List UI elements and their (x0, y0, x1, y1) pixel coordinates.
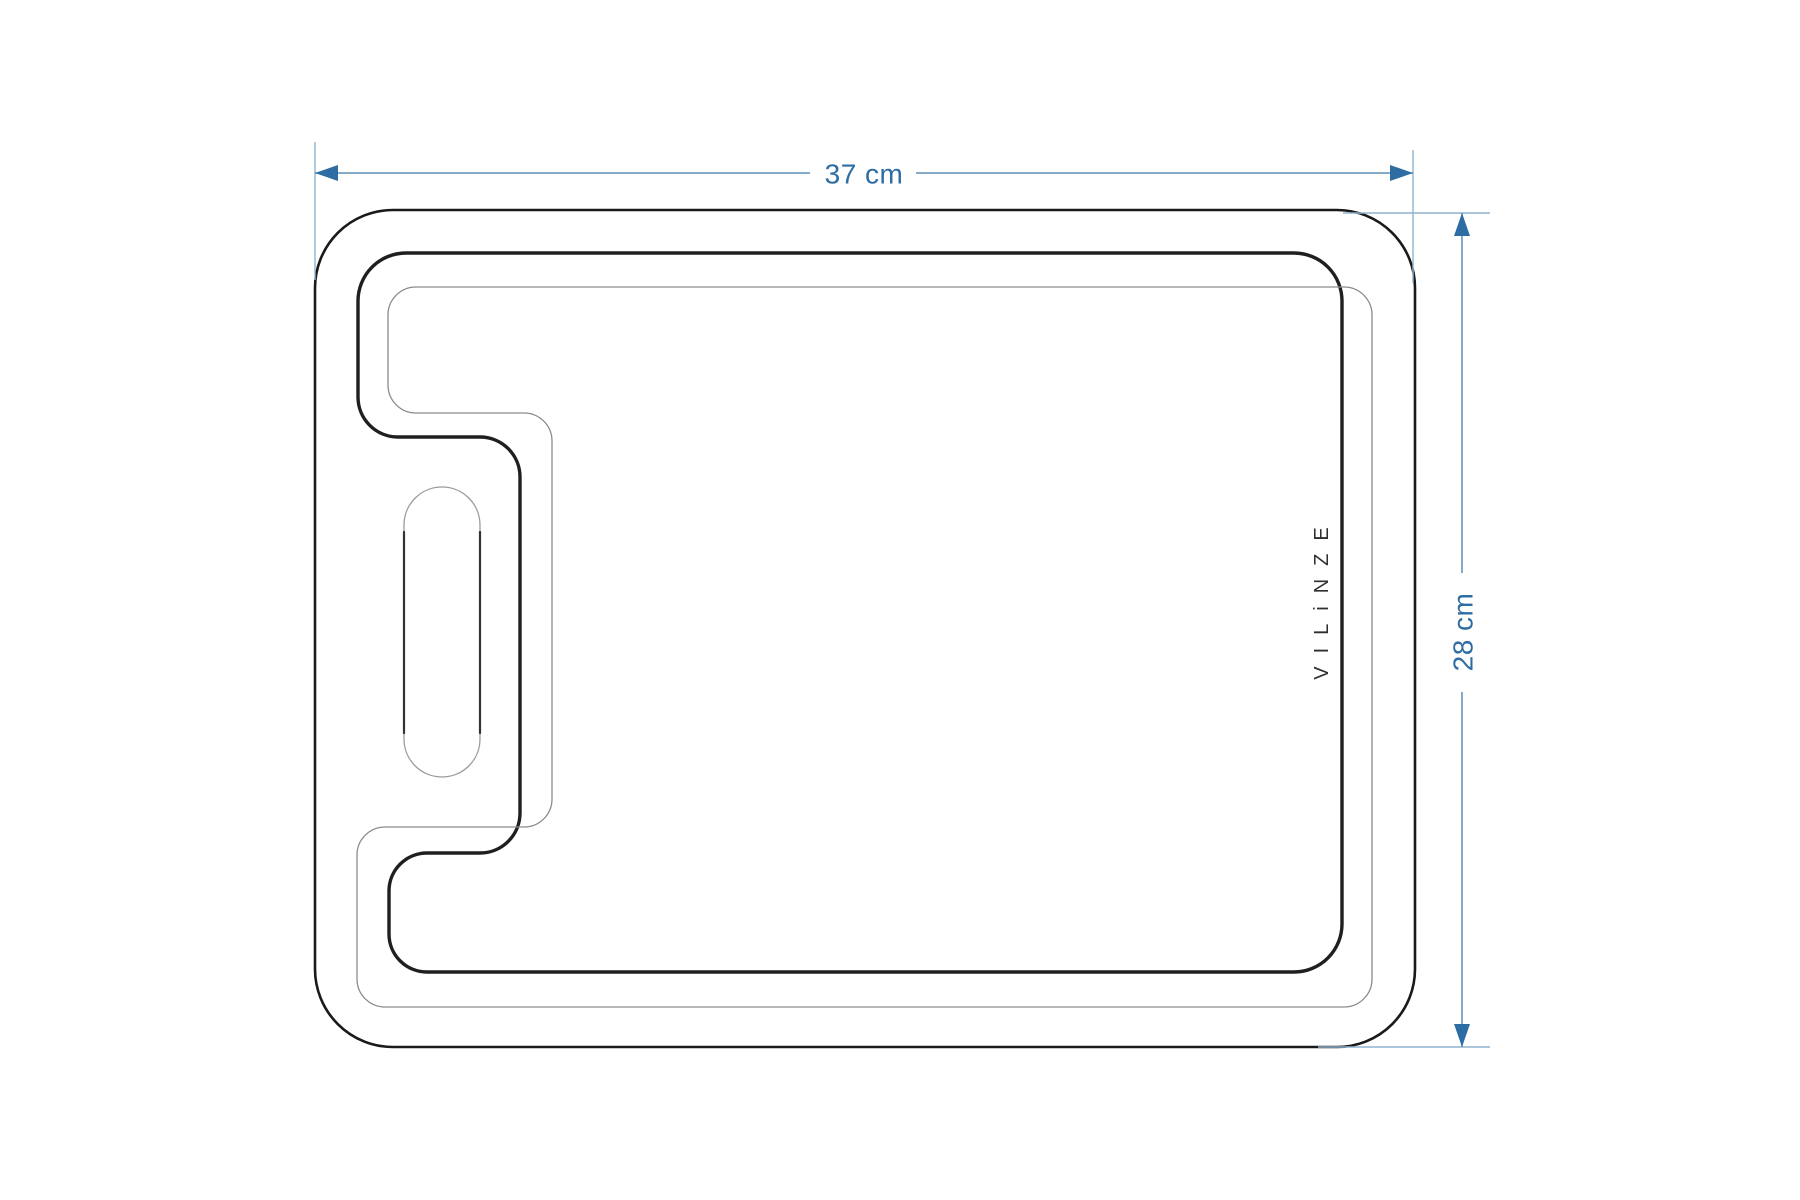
height-dimension: 28 cm (1318, 213, 1490, 1047)
arrow-up-icon (1454, 213, 1470, 236)
groove-outer-contour (358, 253, 1342, 972)
cutting-board: VILiNZE (315, 210, 1415, 1047)
handle-slot (404, 487, 480, 777)
diagram-canvas: VILiNZE 37 cm 28 cm (0, 0, 1800, 1200)
arrow-right-icon (1390, 165, 1413, 181)
cutting-board-dimension-diagram: VILiNZE 37 cm 28 cm (0, 0, 1800, 1200)
arrow-left-icon (315, 165, 338, 181)
brand-logo-text: VILiNZE (1311, 514, 1333, 679)
width-dimension-label: 37 cm (825, 159, 904, 190)
width-dimension: 37 cm (315, 142, 1413, 283)
groove-inner-contour (357, 287, 1372, 1007)
arrow-down-icon (1454, 1024, 1470, 1047)
height-dimension-label: 28 cm (1448, 593, 1479, 672)
handle-slot-outline (404, 487, 480, 777)
